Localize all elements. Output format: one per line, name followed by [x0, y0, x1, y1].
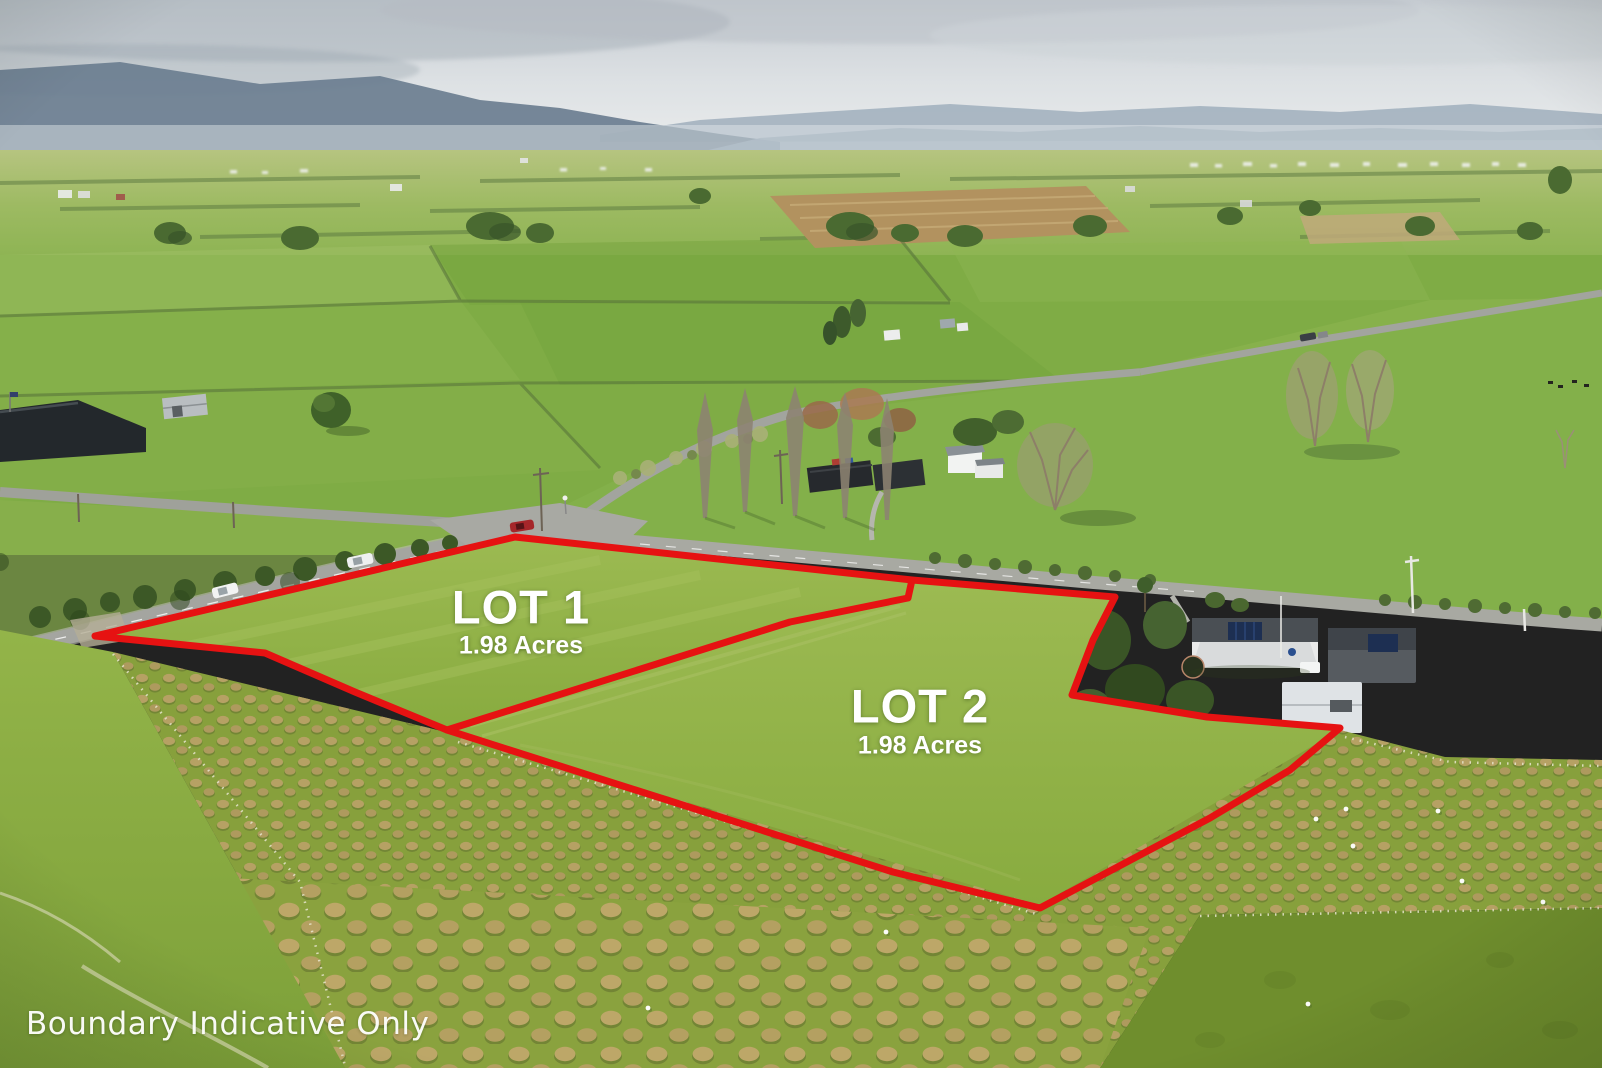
aerial-photo: LOT 1 1.98 Acres LOT 2 1.98 Acres Bounda…	[0, 0, 1602, 1068]
lot-1-area: 1.98 Acres	[459, 634, 583, 659]
lot-2-area: 1.98 Acres	[858, 734, 982, 759]
lot-2-label: LOT 2	[851, 683, 989, 730]
vignette	[0, 0, 1602, 1068]
boundary-disclaimer-watermark: Boundary Indicative Only	[26, 1006, 429, 1042]
lot-1-label: LOT 1	[452, 584, 590, 631]
scene	[0, 0, 1602, 1068]
